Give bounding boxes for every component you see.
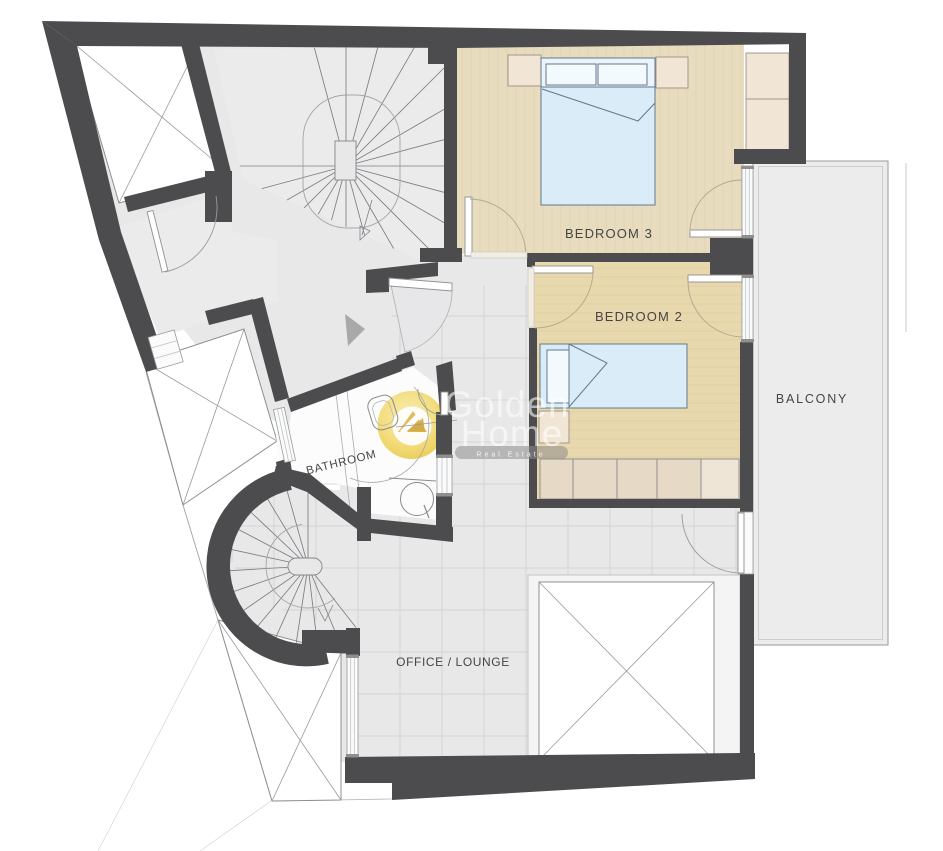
svg-text:OFFICE / LOUNGE: OFFICE / LOUNGE bbox=[396, 655, 510, 669]
svg-text:BALCONY: BALCONY bbox=[776, 392, 848, 406]
svg-text:BEDROOM 2: BEDROOM 2 bbox=[595, 309, 683, 324]
svg-text:BEDROOM 3: BEDROOM 3 bbox=[565, 226, 653, 241]
svg-text:Real Estate: Real Estate bbox=[476, 452, 545, 459]
